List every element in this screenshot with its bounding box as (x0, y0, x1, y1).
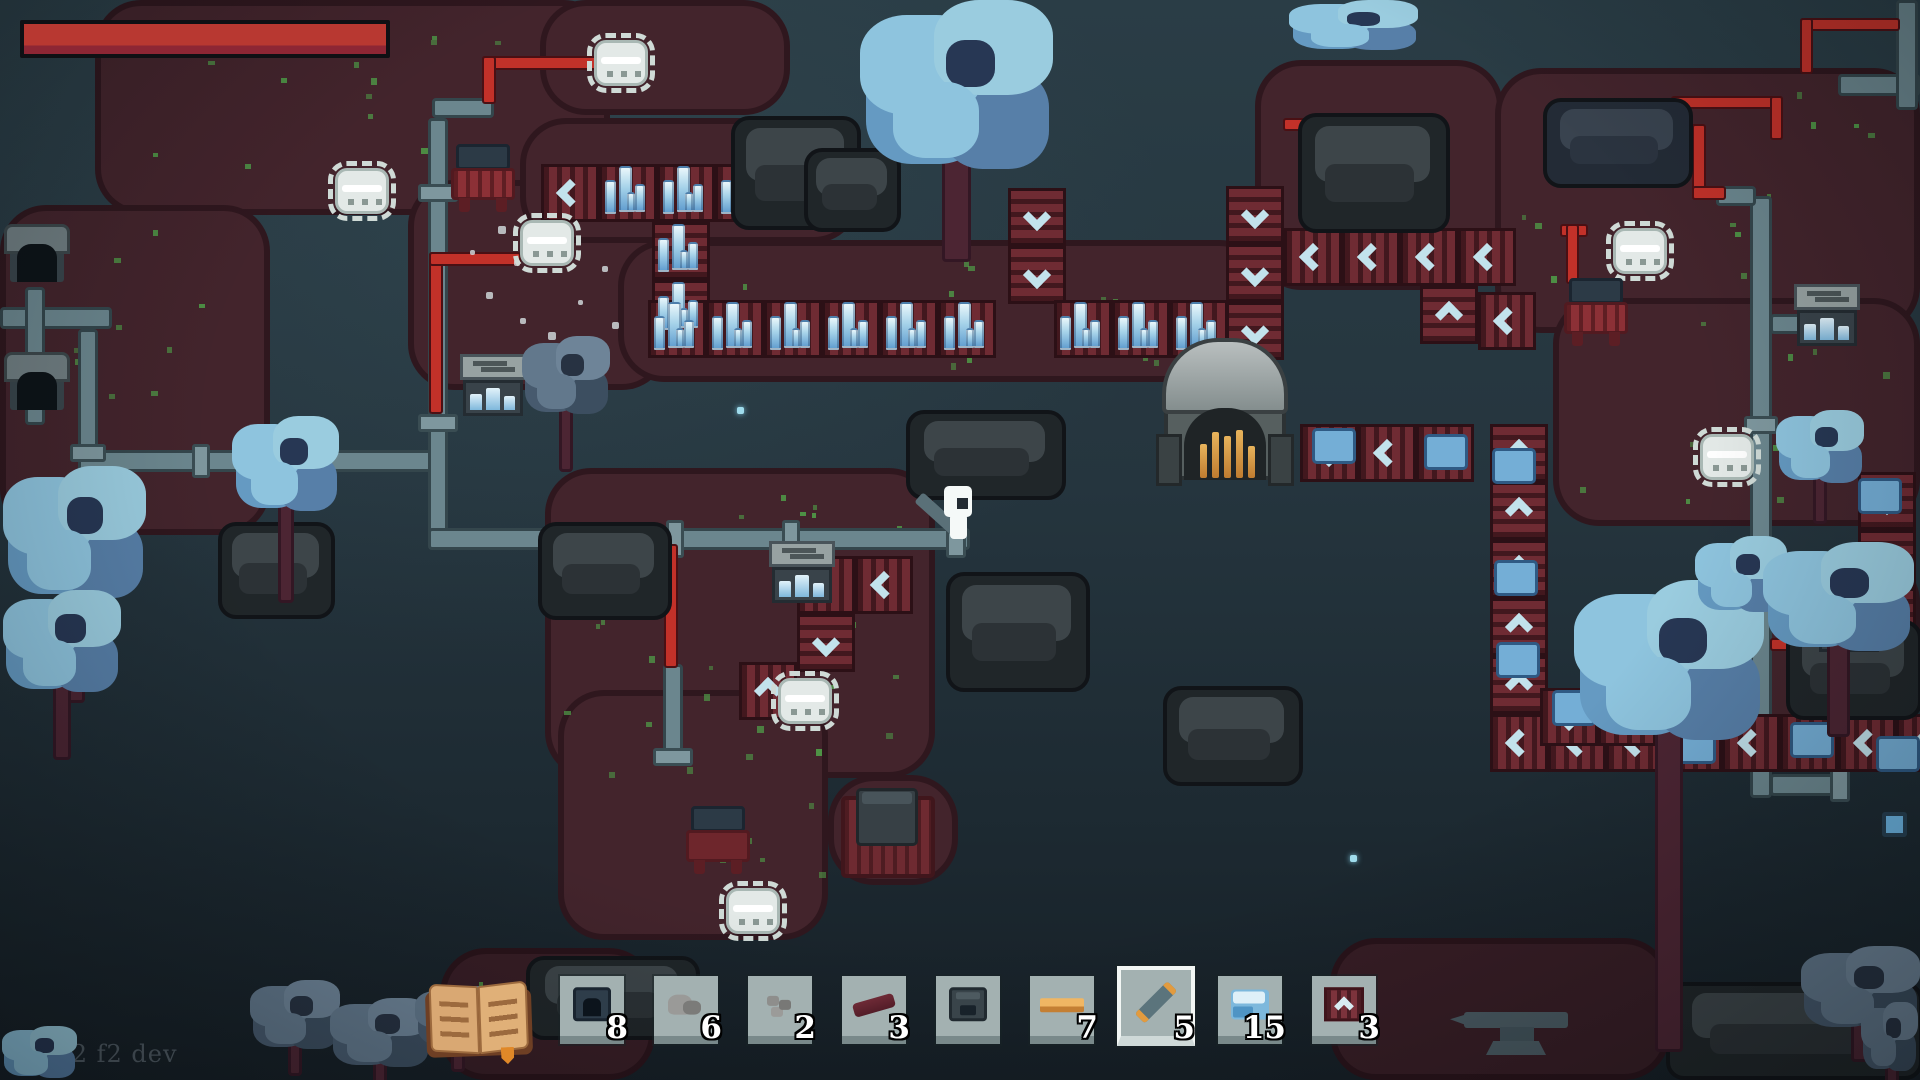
drill-notch (819, 709, 825, 715)
spike (966, 328, 974, 348)
anvil[interactable] (1450, 1008, 1570, 1062)
tunnel-machine[interactable] (4, 352, 70, 414)
drill-notch (547, 251, 553, 257)
ice-block-item[interactable] (1312, 428, 1356, 464)
green-speck (1883, 372, 1890, 379)
crystal-content-icon (1820, 318, 1834, 340)
green-speck (760, 858, 765, 862)
pipe-segment[interactable] (1896, 0, 1918, 110)
drill-notch (753, 919, 759, 925)
spike (684, 320, 694, 348)
pickup-item[interactable] (1882, 812, 1907, 837)
storage-box-machine[interactable] (460, 354, 526, 418)
fire-grate-bar (1200, 444, 1207, 478)
drill-notch (621, 71, 627, 77)
storage-box-machine[interactable] (769, 541, 835, 605)
power-wire[interactable] (429, 252, 521, 266)
spike (627, 192, 635, 212)
player-character (910, 484, 980, 560)
tree[interactable] (1286, 0, 1424, 54)
drill-notch (362, 199, 368, 205)
green-speck (596, 624, 600, 629)
green-speck (1551, 276, 1557, 283)
extractor-leg (496, 198, 507, 212)
pipe-segment[interactable] (428, 528, 970, 550)
fire-grate-bar (1248, 446, 1255, 478)
pipe-flange[interactable] (192, 444, 210, 478)
spike (828, 316, 839, 350)
green-speck (1535, 223, 1542, 229)
crystal-spikes[interactable] (822, 274, 880, 358)
crystal[interactable] (226, 292, 257, 328)
snow-particle (602, 266, 608, 272)
crystal[interactable] (22, 180, 56, 220)
conveyor-tile[interactable] (1420, 286, 1478, 344)
green-speck (1701, 322, 1706, 326)
green-speck (366, 94, 372, 99)
green-speck (812, 513, 816, 518)
health-bar-fill (24, 24, 386, 54)
spike (800, 320, 810, 348)
green-speck (153, 230, 158, 236)
spike (742, 320, 752, 348)
rock-mid (1570, 136, 1658, 164)
extractor-body (451, 168, 515, 200)
extractor-machine[interactable] (686, 806, 750, 876)
conveyor-tile[interactable] (1342, 228, 1400, 286)
spike (908, 328, 916, 348)
foliage (1789, 595, 1856, 644)
mining-drill-machine[interactable] (594, 40, 648, 86)
slot-count: 15 (1243, 1010, 1286, 1046)
green-speck (813, 505, 817, 510)
pipe-segment[interactable] (0, 307, 112, 329)
foliage (347, 1031, 392, 1062)
drill-slit (601, 57, 641, 64)
book-page-left (429, 984, 480, 1055)
pipe-segment[interactable] (78, 329, 98, 454)
rock-mid (1188, 729, 1270, 760)
stone-chunks-icon (765, 994, 795, 1016)
bush[interactable] (1860, 1002, 1920, 1080)
tunnel-opening (17, 372, 57, 410)
drill-notch (1741, 465, 1747, 471)
conveyor-tile[interactable] (541, 164, 599, 222)
drill-notch (1713, 465, 1719, 471)
sparkle-dot (737, 407, 744, 414)
ice-block-item[interactable] (1496, 642, 1540, 678)
power-wire[interactable] (1800, 18, 1813, 74)
green-speck (800, 512, 806, 516)
hotbar-slot-3[interactable]: 2 (748, 976, 812, 1044)
extractor-leg (694, 860, 705, 874)
spike (1060, 316, 1071, 350)
green-speck (1686, 499, 1690, 504)
box-top-band (1794, 284, 1860, 310)
crystal-content-icon (470, 394, 482, 410)
hotbar-slot-6[interactable]: 7 (1030, 976, 1094, 1044)
slot-count: 6 (700, 1010, 722, 1046)
power-wire[interactable] (1800, 18, 1900, 31)
smoke-icon (473, 361, 507, 366)
smoke-icon (782, 548, 816, 553)
crystal-spikes[interactable] (706, 274, 764, 358)
foliage (893, 82, 979, 158)
crystal-content-icon (795, 575, 809, 597)
foliage (946, 40, 995, 87)
mining-drill-machine[interactable] (520, 220, 574, 266)
foliage (1736, 554, 1760, 575)
power-wire[interactable] (482, 56, 602, 70)
conveyor-chevron-icon (1241, 201, 1269, 229)
green-speck (967, 358, 972, 363)
rock[interactable] (538, 522, 672, 620)
tree-trunk (1655, 704, 1683, 1052)
green-speck (781, 495, 786, 501)
spike (734, 328, 742, 348)
character-visor (957, 498, 968, 509)
furnace-lid (862, 792, 912, 804)
spike (944, 316, 955, 350)
pipe-flange[interactable] (1744, 416, 1778, 434)
tunnel-machine[interactable] (4, 224, 70, 286)
drill-notch (376, 199, 382, 205)
tree[interactable] (0, 1026, 80, 1080)
crystal[interactable] (1849, 120, 1886, 164)
drill-notch (739, 919, 745, 925)
extractor-screen (1569, 278, 1623, 304)
fire-grate-bar (1236, 430, 1243, 478)
anvil-top (1464, 1012, 1568, 1028)
green-speck (819, 872, 826, 878)
fire-grate-bar (1212, 432, 1219, 478)
green-speck (1690, 442, 1697, 447)
conveyor-chevron-icon (1415, 243, 1443, 271)
anvil-waist (1500, 1027, 1534, 1042)
green-speck (1797, 92, 1802, 99)
conveyor-tile[interactable] (1478, 292, 1536, 350)
green-speck (1730, 223, 1736, 227)
pipe-flange[interactable] (653, 748, 693, 766)
ice-block-item[interactable] (1492, 448, 1536, 484)
power-wire[interactable] (482, 56, 496, 104)
furnace-dome (1162, 338, 1288, 414)
drill-notch (767, 919, 773, 925)
green-speck (687, 767, 693, 774)
foliage (1815, 427, 1838, 447)
tree[interactable] (1774, 410, 1868, 524)
green-speck (371, 78, 377, 85)
rock[interactable] (1543, 98, 1693, 188)
extractor-body (686, 830, 750, 862)
drill-notch (635, 71, 641, 77)
green-speck (109, 394, 115, 399)
drill-notch (533, 251, 539, 257)
hotbar-slot-5[interactable] (936, 976, 1000, 1044)
crystal-spikes[interactable] (648, 274, 706, 358)
spike (676, 328, 684, 348)
foliage (27, 530, 91, 590)
snow-particle (612, 322, 619, 329)
extractor-leg (1609, 332, 1620, 346)
foliage (537, 374, 576, 409)
crystal-spikes[interactable] (938, 274, 996, 358)
conveyor-chevron-icon (1435, 301, 1463, 329)
snow-particle (486, 292, 493, 299)
conveyor-chevron-icon (870, 571, 898, 599)
green-speck (151, 391, 158, 396)
green-speck (1741, 273, 1747, 279)
spike (1118, 316, 1129, 350)
power-wire[interactable] (1770, 96, 1783, 140)
snow-particle (520, 318, 526, 324)
spike (858, 320, 868, 348)
spike (1082, 328, 1090, 348)
mining-drill-machine[interactable] (726, 888, 780, 934)
green-speck (704, 694, 710, 701)
green-speck (116, 325, 122, 330)
extractor-machine[interactable] (1564, 278, 1628, 348)
pipe-flange[interactable] (70, 444, 106, 462)
crystal-content-icon (779, 581, 791, 597)
conveyor-chevron-icon (1493, 307, 1521, 335)
green-speck (968, 266, 975, 271)
pipe-item-icon (1135, 981, 1177, 1023)
green-speck (281, 78, 287, 83)
tree[interactable] (230, 416, 344, 603)
green-speck (951, 363, 956, 370)
drill-notch (1626, 259, 1632, 265)
extractor-leg (731, 860, 742, 874)
green-speck (1580, 487, 1586, 493)
tree[interactable] (1760, 542, 1920, 737)
rock[interactable] (946, 572, 1090, 692)
storage-box-machine[interactable] (1794, 284, 1860, 348)
spike (654, 316, 665, 350)
rock-mid (934, 448, 1028, 476)
drill-slit (527, 237, 567, 244)
extractor-leg (459, 198, 470, 212)
rock-mid (1325, 164, 1414, 202)
green-speck (893, 675, 899, 679)
hotbar-slot-2[interactable]: 6 (654, 976, 718, 1044)
drill-notch (348, 199, 354, 205)
green-speck (757, 726, 764, 733)
crystal[interactable] (1583, 386, 1617, 426)
slot-count: 7 (1076, 1010, 1098, 1046)
green-speck (495, 41, 501, 45)
mining-drill-machine[interactable] (1700, 434, 1754, 480)
extractor-machine[interactable] (451, 144, 515, 214)
crystal-spikes[interactable] (764, 274, 822, 358)
slot-count: 2 (794, 1010, 816, 1046)
drill-notch (805, 709, 811, 715)
conveyor-chevron-icon (1505, 613, 1533, 641)
crystal[interactable] (852, 460, 879, 492)
stone-pile-icon (668, 991, 704, 1019)
spike (850, 328, 858, 348)
green-speck (816, 749, 822, 756)
crystal-content-icon (504, 396, 515, 410)
book-bookmark-icon (501, 1047, 515, 1064)
mining-drill-machine[interactable] (778, 678, 832, 724)
green-speck (245, 164, 251, 169)
tunnel-opening (17, 244, 57, 282)
rock-mid (562, 564, 640, 595)
extractor-leg (1572, 332, 1583, 346)
green-speck (886, 733, 893, 739)
foliage (1791, 445, 1830, 478)
conveyor-chevron-icon (1241, 259, 1269, 287)
green-speck (354, 62, 359, 68)
ice-block-item[interactable] (1494, 560, 1538, 596)
green-speck (1788, 354, 1793, 361)
snow-particle (514, 260, 520, 266)
green-speck (432, 36, 437, 40)
crystal-spikes[interactable] (1054, 274, 1112, 358)
crystal[interactable] (788, 610, 825, 654)
conveyor-chevron-icon (556, 179, 584, 207)
pipe-segment[interactable] (663, 664, 683, 758)
crystal-spikes[interactable] (599, 138, 657, 222)
box-top-band (460, 354, 526, 380)
spike (770, 316, 781, 350)
crystal[interactable] (534, 266, 575, 314)
foliage (265, 1013, 305, 1044)
conveyor-chevron-icon (1023, 261, 1051, 289)
crystal-content-icon (813, 583, 824, 597)
drill-notch (1654, 259, 1660, 265)
conveyor-chevron-icon (1473, 243, 1501, 271)
green-speck (709, 666, 713, 670)
tree[interactable] (1570, 580, 1772, 1052)
box-top-band (769, 541, 835, 567)
crystal-content-icon (1804, 324, 1816, 340)
sparkle-dot (1350, 855, 1357, 862)
spike (792, 328, 800, 348)
hotbar-slot-4[interactable]: 3 (842, 976, 906, 1044)
green-speck (739, 515, 744, 519)
green-speck (1811, 122, 1816, 129)
foliage (1830, 568, 1868, 598)
conveyor-tile[interactable] (855, 556, 913, 614)
green-speck (421, 148, 428, 154)
green-speck (1522, 215, 1526, 220)
spike (635, 184, 645, 212)
smoke-icon (1807, 291, 1841, 296)
power-wire[interactable] (1692, 186, 1726, 200)
extractor-screen (691, 806, 745, 832)
foliage (14, 1051, 48, 1075)
pipe-flange[interactable] (418, 414, 458, 432)
rock-mid (972, 623, 1056, 661)
green-speck (809, 803, 814, 809)
spike (1140, 328, 1148, 348)
conveyor-tile[interactable] (1458, 228, 1516, 286)
conveyor-tile[interactable] (1358, 424, 1416, 482)
bush[interactable] (520, 336, 614, 472)
conveyor-chevron-icon (1373, 439, 1401, 467)
foliage (1606, 657, 1691, 729)
green-speck (167, 347, 172, 353)
drill-slit (785, 695, 825, 702)
character-body (950, 516, 967, 539)
snow-particle (498, 226, 506, 234)
spike (605, 180, 616, 214)
furnace-machine[interactable] (841, 796, 935, 878)
foliage (280, 438, 307, 465)
drill-slit (1620, 245, 1660, 252)
hotbar-slot-7-selected[interactable]: 5 (1117, 966, 1195, 1046)
furnace-block (1156, 434, 1182, 486)
spike (712, 316, 723, 350)
green-speck (649, 656, 655, 663)
conveyor-tile[interactable] (1226, 244, 1284, 302)
foliage (55, 614, 85, 643)
crystal-spikes[interactable] (880, 274, 938, 358)
crystal[interactable] (1813, 226, 1847, 266)
green-speck (1625, 221, 1629, 225)
crystal[interactable] (1485, 198, 1505, 222)
drill-slit (1707, 451, 1747, 458)
foliage (1871, 1035, 1896, 1066)
mining-drill-machine[interactable] (1613, 228, 1667, 274)
drill-slit (342, 185, 382, 192)
recipe-book-button[interactable] (424, 976, 537, 1070)
hotbar-slot-1[interactable]: 8 (560, 976, 624, 1044)
crystal[interactable] (1283, 266, 1307, 294)
power-wire[interactable] (429, 252, 443, 414)
conveyor-chevron-icon (1357, 243, 1385, 271)
conveyor-tile[interactable] (1400, 228, 1458, 286)
furnace-structure[interactable] (1156, 338, 1294, 488)
furnace-block (1268, 434, 1294, 486)
spike (886, 316, 897, 350)
snow-particle (470, 250, 475, 255)
hotbar-slot-8[interactable]: 15 (1218, 976, 1282, 1044)
crystal[interactable] (30, 146, 54, 174)
crystal-content-icon (1838, 326, 1849, 340)
slot-count: 8 (606, 1010, 628, 1046)
drill-notch (607, 71, 613, 77)
green-speck (746, 754, 753, 760)
tree[interactable] (856, 0, 1061, 262)
green-speck (431, 40, 437, 45)
green-speck (1813, 349, 1817, 355)
crystal[interactable] (1383, 1031, 1410, 1063)
mining-drill-machine[interactable] (335, 168, 389, 214)
slot-count: 3 (1358, 1010, 1380, 1046)
tree[interactable] (0, 590, 126, 760)
conveyor-tile[interactable] (1226, 186, 1284, 244)
health-bar (20, 20, 390, 58)
ice-block-item[interactable] (1424, 434, 1468, 470)
rock[interactable] (1163, 686, 1303, 786)
green-speck (114, 258, 121, 263)
hotbar-slot-9[interactable]: 3 (1312, 976, 1376, 1044)
spike (916, 320, 926, 348)
rock[interactable] (1298, 113, 1450, 233)
conveyor-chevron-icon (1505, 497, 1533, 525)
game-viewport: 862375153 v0.22 f2 dev (0, 0, 1920, 1080)
extractor-screen (456, 144, 510, 170)
green-speck (153, 153, 158, 157)
ice-block-item[interactable] (1876, 736, 1920, 772)
green-speck (368, 114, 373, 119)
conveyor-tile[interactable] (1490, 482, 1548, 540)
green-speck (646, 722, 652, 727)
power-wire[interactable] (1566, 224, 1579, 284)
